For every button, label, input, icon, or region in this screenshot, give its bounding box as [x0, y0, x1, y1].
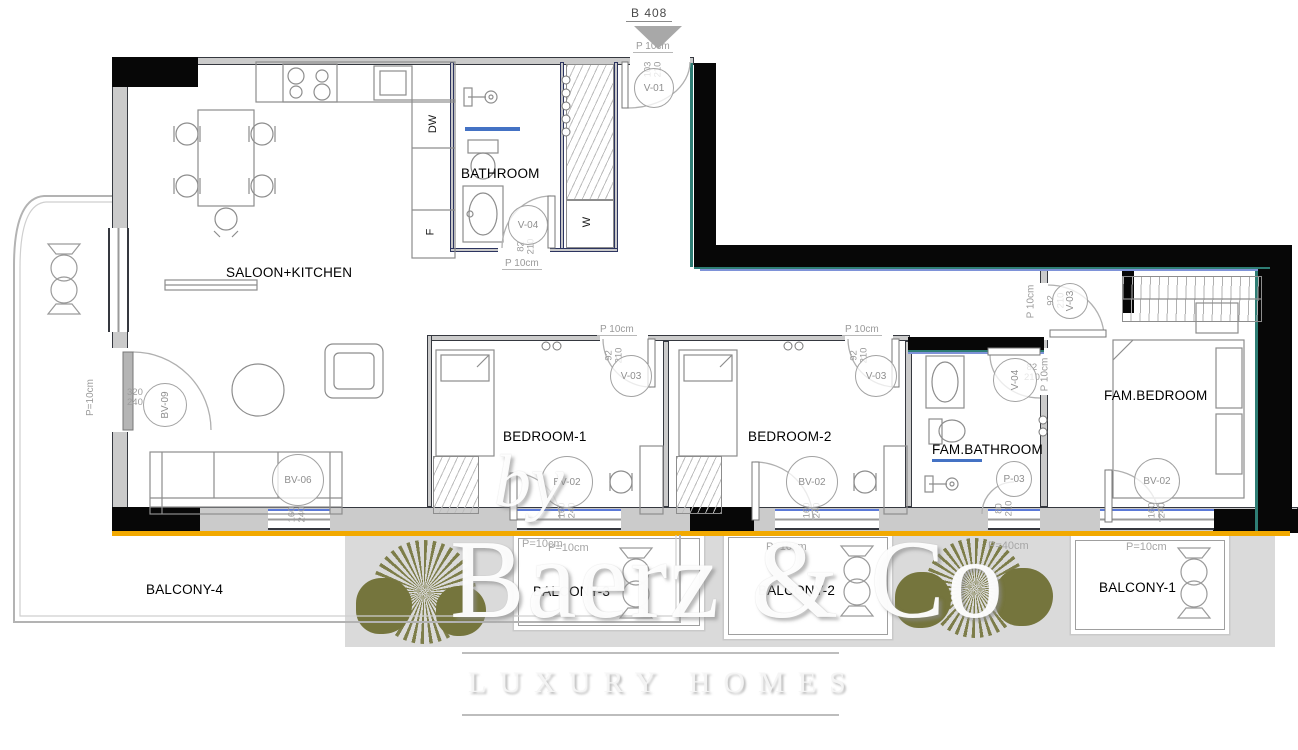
door-tag-v04-bath: V-04 [508, 205, 548, 245]
window-tag-bv06: BV-06 [272, 454, 324, 506]
door-tag-v03-bed1: V-03 [610, 355, 652, 397]
dims-bv02-fam: 160240 [1147, 503, 1166, 519]
furniture [150, 62, 1262, 514]
p-note-bed1: P 10cm [597, 324, 637, 336]
window-tag-bv02-fam: BV-02 [1134, 458, 1180, 504]
door-tag-v03-bed2: V-03 [855, 355, 897, 397]
room-label-fam-bedroom: FAM.BEDROOM [1104, 388, 1207, 403]
p-note-bed2: P 10cm [842, 324, 882, 336]
p-note-fam-door: P 10cm [1025, 285, 1036, 319]
towel-rail [465, 127, 520, 131]
room-label-balcony4: BALCONY-4 [146, 582, 223, 597]
room-label-bedroom2: BEDROOM-2 [748, 429, 832, 444]
watermark-rule-top [462, 652, 839, 654]
p-note-balcony1: P=10cm [1126, 541, 1167, 553]
p-note-bath: P 10cm [502, 258, 542, 270]
window-tag-bv02-bed2: BV-02 [786, 456, 838, 508]
window-tag-bv09: BV-09 [143, 383, 187, 427]
floor-plan: B 408 SALOON+KITCHEN BATHROOM BEDROOM-1 … [0, 0, 1298, 750]
unit-marker: B 408 [626, 6, 672, 22]
watermark-by: by [494, 440, 564, 525]
dims-bv09: 320240 [127, 388, 143, 408]
room-label-bathroom: BATHROOM [461, 166, 540, 181]
fridge-label: F [424, 229, 436, 236]
towel-rail [932, 459, 982, 462]
dims-bv06: 160240 [287, 507, 306, 523]
watermark-tagline: LUXURY HOMES [468, 666, 859, 700]
dims-p03: 80210 [994, 501, 1013, 517]
door-tag-p03: P-03 [996, 461, 1032, 497]
watermark-rule-bottom [462, 714, 839, 716]
entry-arrow-icon [634, 26, 682, 49]
wardrobe-label: W [581, 217, 593, 227]
p-note-left-parapet: P=10cm [85, 379, 96, 416]
door-tag-v04-fam: V-04 [993, 358, 1037, 402]
room-label-fam-bathroom: FAM.BATHROOM [932, 442, 1043, 457]
p-note-fambath-door: P 10cm [1039, 358, 1050, 392]
dishwasher-label: DW [427, 115, 439, 133]
door-tag-v03-fam: V-03 [1052, 283, 1088, 319]
room-label-balcony1: BALCONY-1 [1099, 580, 1176, 595]
door-tag-v01: V-01 [634, 68, 674, 108]
room-label-saloon: SALOON+KITCHEN [226, 265, 352, 280]
watermark-brand: Baerz & Co [450, 516, 1005, 645]
